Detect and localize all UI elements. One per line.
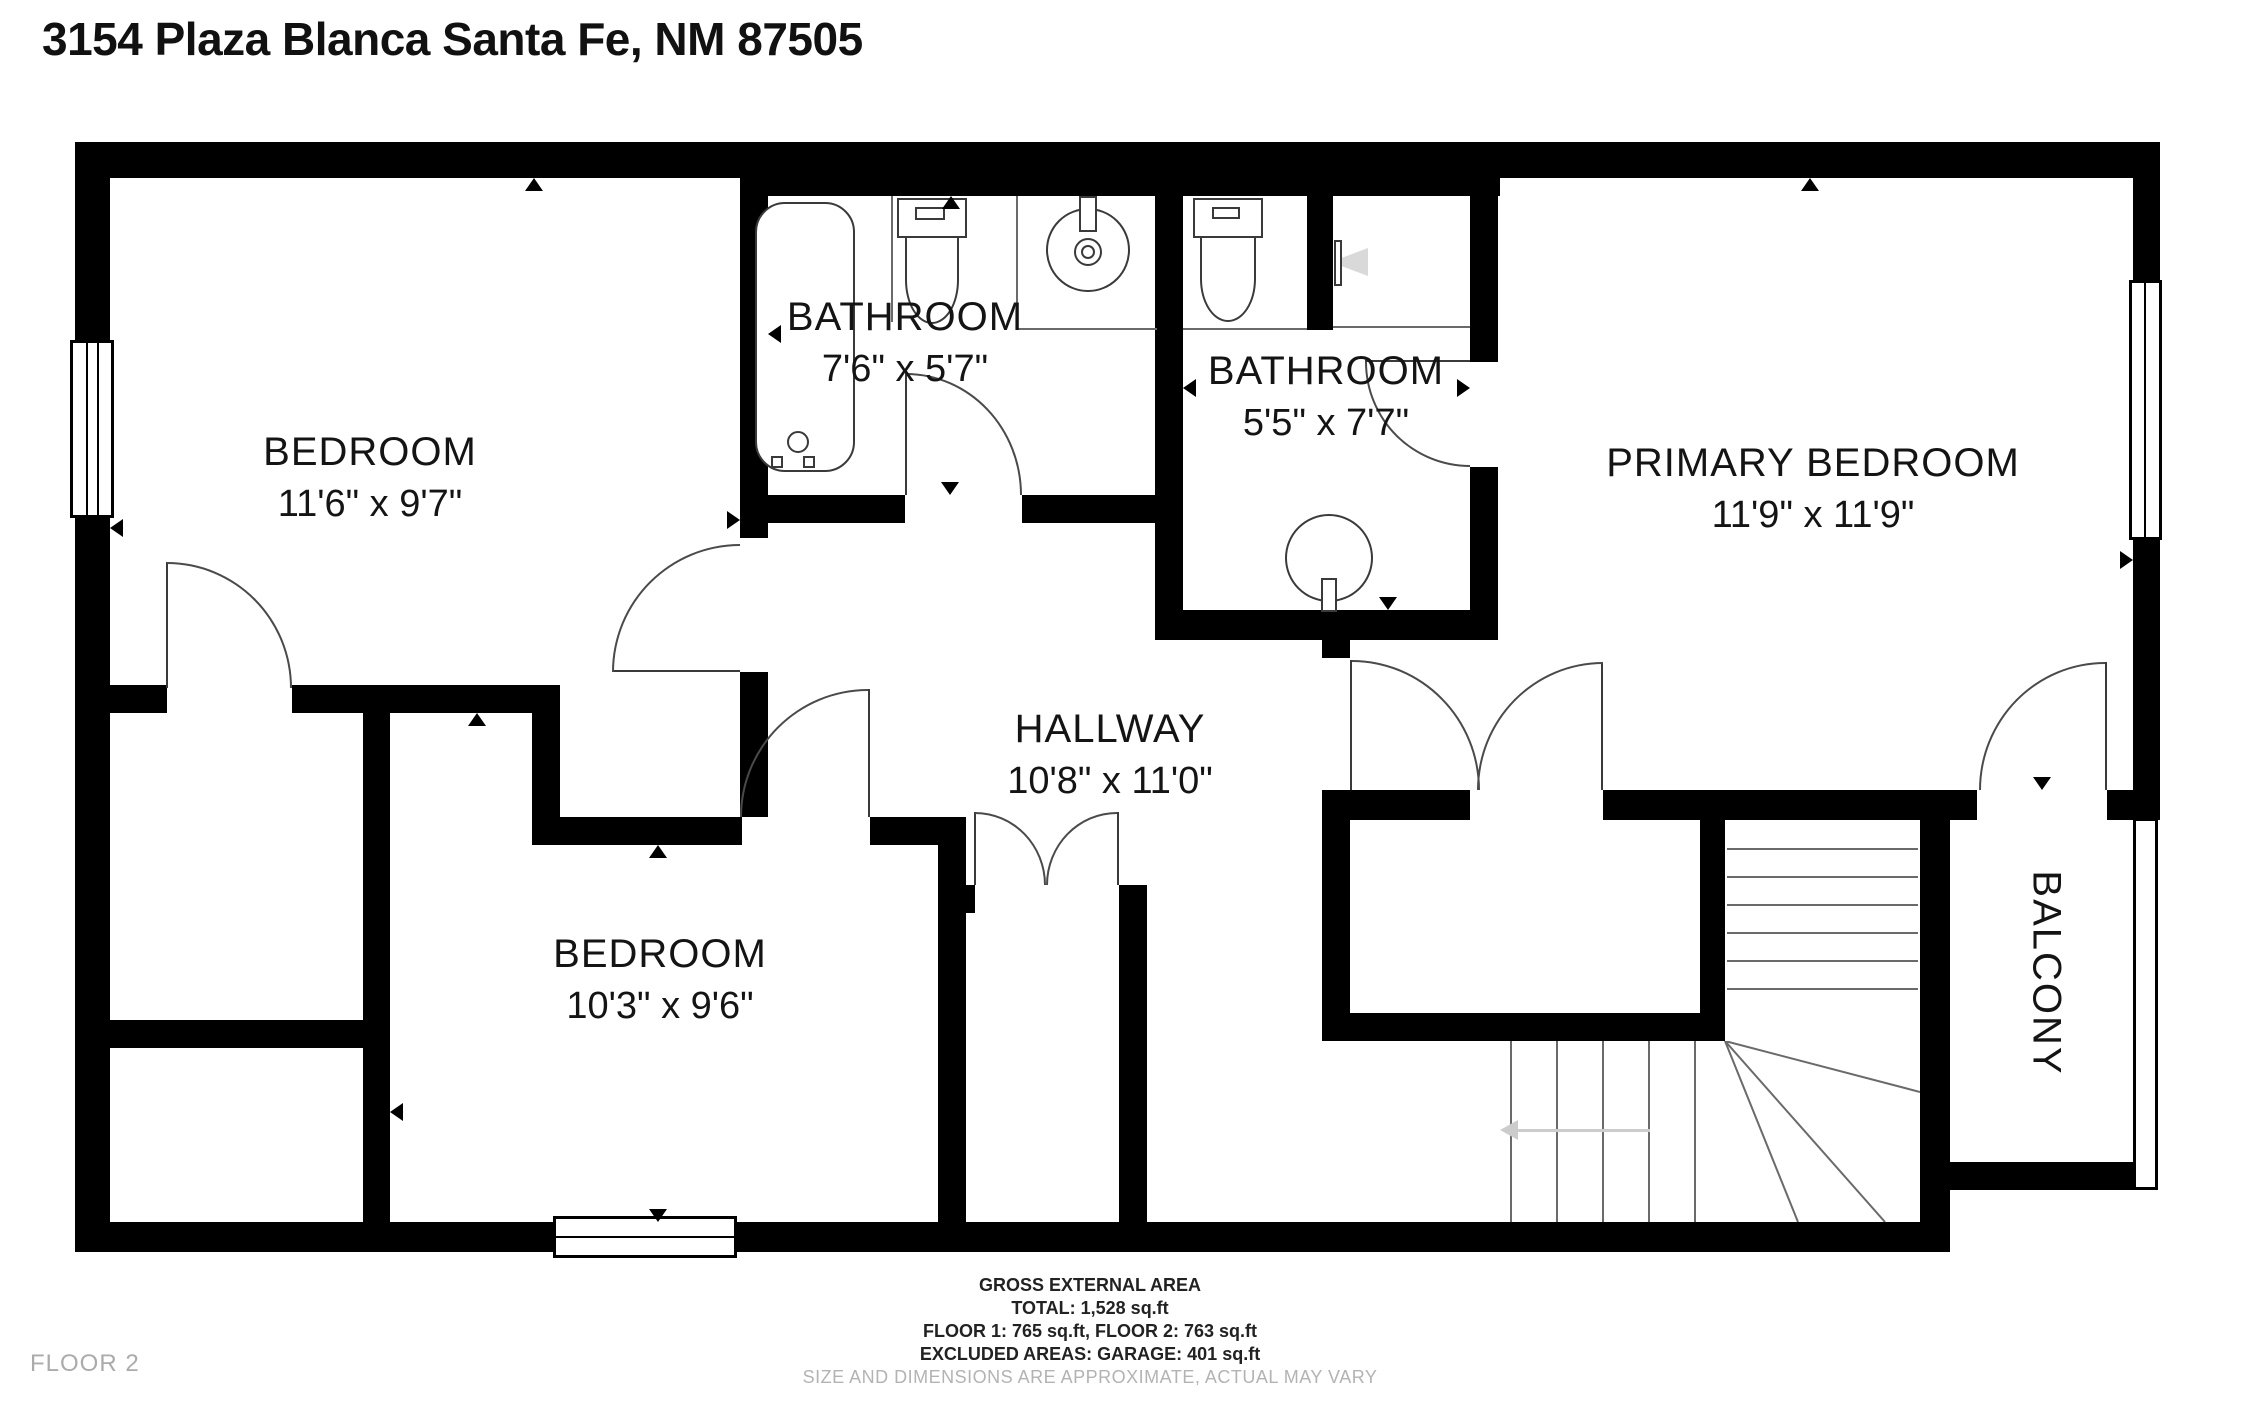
stair-tread xyxy=(1727,904,1918,906)
wall-closet-right-left xyxy=(1322,820,1350,1041)
wall-arrow-icon xyxy=(2120,551,2133,569)
bathtub-tap-icon xyxy=(803,456,815,468)
balcony-door-leaf xyxy=(2105,662,2107,790)
stair-direction-arrow-head xyxy=(1500,1120,1518,1140)
room-dims: 11'9" x 11'9" xyxy=(1606,489,2020,541)
wall-closet-column-right xyxy=(363,713,390,1222)
room-label-bedroom-1: BEDROOM 11'6" x 9'7" xyxy=(263,426,477,530)
toilet-flush-icon xyxy=(915,207,945,220)
toilet-flush-icon xyxy=(1212,207,1240,219)
wall-arrow-icon xyxy=(390,1103,403,1121)
window-mullion xyxy=(97,343,99,515)
wall-closet-column-divider xyxy=(75,1020,390,1048)
room-dims: 7'6" x 5'7" xyxy=(787,343,1023,395)
sink-faucet-icon xyxy=(1321,578,1337,612)
sink-faucet-icon xyxy=(1079,196,1097,232)
wall-arrow-icon xyxy=(649,845,667,858)
room-dims: 10'3" x 9'6" xyxy=(553,980,767,1032)
room-name: HALLWAY xyxy=(1007,703,1213,755)
wall-arrow-icon xyxy=(649,1209,667,1222)
balcony-door-swing-arc xyxy=(1979,662,2105,790)
exterior-wall-top-bathrooms xyxy=(740,178,1500,196)
closet-door-swing-arc xyxy=(975,812,1046,885)
stair-direction-arrow xyxy=(1518,1129,1650,1132)
balcony-railing xyxy=(2133,818,2158,1190)
wall-bathrooms-divider xyxy=(1155,196,1183,640)
wall-bedroom1-bottom-a xyxy=(75,685,167,713)
wall-stairs-balcony xyxy=(1920,820,1950,1252)
room-label-bedroom-2: BEDROOM 10'3" x 9'6" xyxy=(553,928,767,1032)
wall-shower-partition xyxy=(1307,196,1333,330)
wall-south-c xyxy=(2107,790,2158,820)
exterior-wall-left-lower xyxy=(75,518,110,1252)
room-name: BATHROOM xyxy=(787,291,1023,343)
wall-south-b xyxy=(1603,790,1977,820)
wall-arrow-icon xyxy=(941,482,959,495)
sink-drain-icon xyxy=(1081,245,1095,259)
room-label-primary-bedroom: PRIMARY BEDROOM 11'9" x 11'9" xyxy=(1606,437,2020,541)
wall-bedroom2-top-a xyxy=(532,817,742,845)
footer-line: FLOOR 1: 765 sq.ft, FLOOR 2: 763 sq.ft xyxy=(803,1320,1378,1343)
bathtub-tap-icon xyxy=(771,456,783,468)
wall-closet-right-right xyxy=(1700,820,1725,1041)
shower-head-icon xyxy=(1342,248,1368,276)
floorplan-page: 3154 Plaza Blanca Santa Fe, NM 87505 xyxy=(0,0,2245,1402)
footer-area-summary: GROSS EXTERNAL AREA TOTAL: 1,528 sq.ft F… xyxy=(803,1274,1378,1389)
window-mullion xyxy=(2144,283,2146,537)
closet-door-leaf xyxy=(1117,812,1119,885)
wall-closet-right-bottom xyxy=(1322,1013,1725,1041)
wall-arrow-icon xyxy=(942,196,960,209)
winder-steps xyxy=(1694,1041,1920,1222)
room-name: BEDROOM xyxy=(553,928,767,980)
wall-arrow-icon xyxy=(1379,597,1397,610)
closet-door-swing-arc xyxy=(1046,812,1117,885)
stair-tread xyxy=(1727,876,1918,878)
room-label-hallway: HALLWAY 10'8" x 11'0" xyxy=(1007,703,1213,807)
room-dims: 11'6" x 9'7" xyxy=(263,478,477,530)
door-swing-arc xyxy=(612,544,740,672)
floor-number-label: FLOOR 2 xyxy=(30,1350,140,1378)
window-bedroom1-left xyxy=(70,340,114,518)
wall-arrow-icon xyxy=(1183,379,1196,397)
stair-tread xyxy=(1727,960,1918,962)
toilet-bowl-icon xyxy=(1200,236,1256,322)
stair-tread xyxy=(1727,932,1918,934)
wall-arrow-icon xyxy=(468,713,486,726)
room-name: BEDROOM xyxy=(263,426,477,478)
door-swing-arc xyxy=(167,562,292,688)
room-dims: 10'8" x 11'0" xyxy=(1007,755,1213,807)
door-swing-arc xyxy=(1477,662,1603,790)
page-title: 3154 Plaza Blanca Santa Fe, NM 87505 xyxy=(42,12,863,66)
footer-line: GROSS EXTERNAL AREA xyxy=(803,1274,1378,1297)
wall-hall-vestibule-stub xyxy=(1322,640,1350,658)
footer-disclaimer: SIZE AND DIMENSIONS ARE APPROXIMATE, ACT… xyxy=(803,1366,1378,1389)
wall-arrow-icon xyxy=(1801,178,1819,191)
room-label-balcony: BALCONY xyxy=(2024,870,2069,1075)
exterior-wall-right-mid xyxy=(2133,540,2160,820)
door-swing-arc xyxy=(1352,660,1480,790)
room-label-bathroom-1: BATHROOM 7'6" x 5'7" xyxy=(787,291,1023,395)
exterior-wall-right-upper xyxy=(2133,142,2160,280)
wall-bedroom1-bottom-b xyxy=(292,685,560,713)
wall-bathroom1-bottom-b xyxy=(1022,495,1155,523)
wall-arrow-icon xyxy=(1457,379,1470,397)
wall-south-a xyxy=(1322,790,1470,820)
door-leaf xyxy=(868,689,870,817)
counter-line xyxy=(1183,328,1307,330)
shower-valve-icon xyxy=(1334,240,1342,286)
shower-edge-line xyxy=(1333,326,1470,328)
room-name: BATHROOM xyxy=(1208,345,1444,397)
exterior-wall-left-upper xyxy=(75,142,110,340)
footer-line: TOTAL: 1,528 sq.ft xyxy=(803,1297,1378,1320)
room-label-bathroom-2: BATHROOM 5'5" x 7'7" xyxy=(1208,345,1444,449)
counter-line xyxy=(1016,328,1157,330)
exterior-wall-bottom-main xyxy=(737,1222,1950,1252)
wall-bathroom2-bottom xyxy=(1155,610,1498,640)
bathtub-faucet-icon xyxy=(787,431,809,453)
exterior-wall-bottom-left xyxy=(75,1222,553,1252)
room-name: PRIMARY BEDROOM xyxy=(1606,437,2020,489)
exterior-wall-top xyxy=(75,142,2160,178)
wall-bedroom2-top-b xyxy=(870,817,966,845)
wall-hall-closet-top-stub xyxy=(966,885,975,913)
window-mullion xyxy=(556,1236,734,1238)
stair-tread xyxy=(1727,988,1918,990)
room-dims: 5'5" x 7'7" xyxy=(1208,397,1444,449)
wall-arrow-icon xyxy=(727,511,740,529)
wall-bathroom1-bottom-a xyxy=(768,495,905,523)
wall-arrow-icon xyxy=(2033,777,2051,790)
footer-line: EXCLUDED AREAS: GARAGE: 401 sq.ft xyxy=(803,1343,1378,1366)
wall-hall-closet-right xyxy=(1119,885,1147,1222)
wall-arrow-icon xyxy=(768,325,781,343)
window-mullion xyxy=(86,343,88,515)
wall-arrow-icon xyxy=(525,178,543,191)
wall-arrow-icon xyxy=(110,519,123,537)
balcony-bottom-wall xyxy=(1950,1162,2133,1190)
wall-bathroom2-right-upper xyxy=(1470,142,1498,362)
stair-tread xyxy=(1727,848,1918,850)
wall-bedroom2-right xyxy=(938,845,966,1222)
